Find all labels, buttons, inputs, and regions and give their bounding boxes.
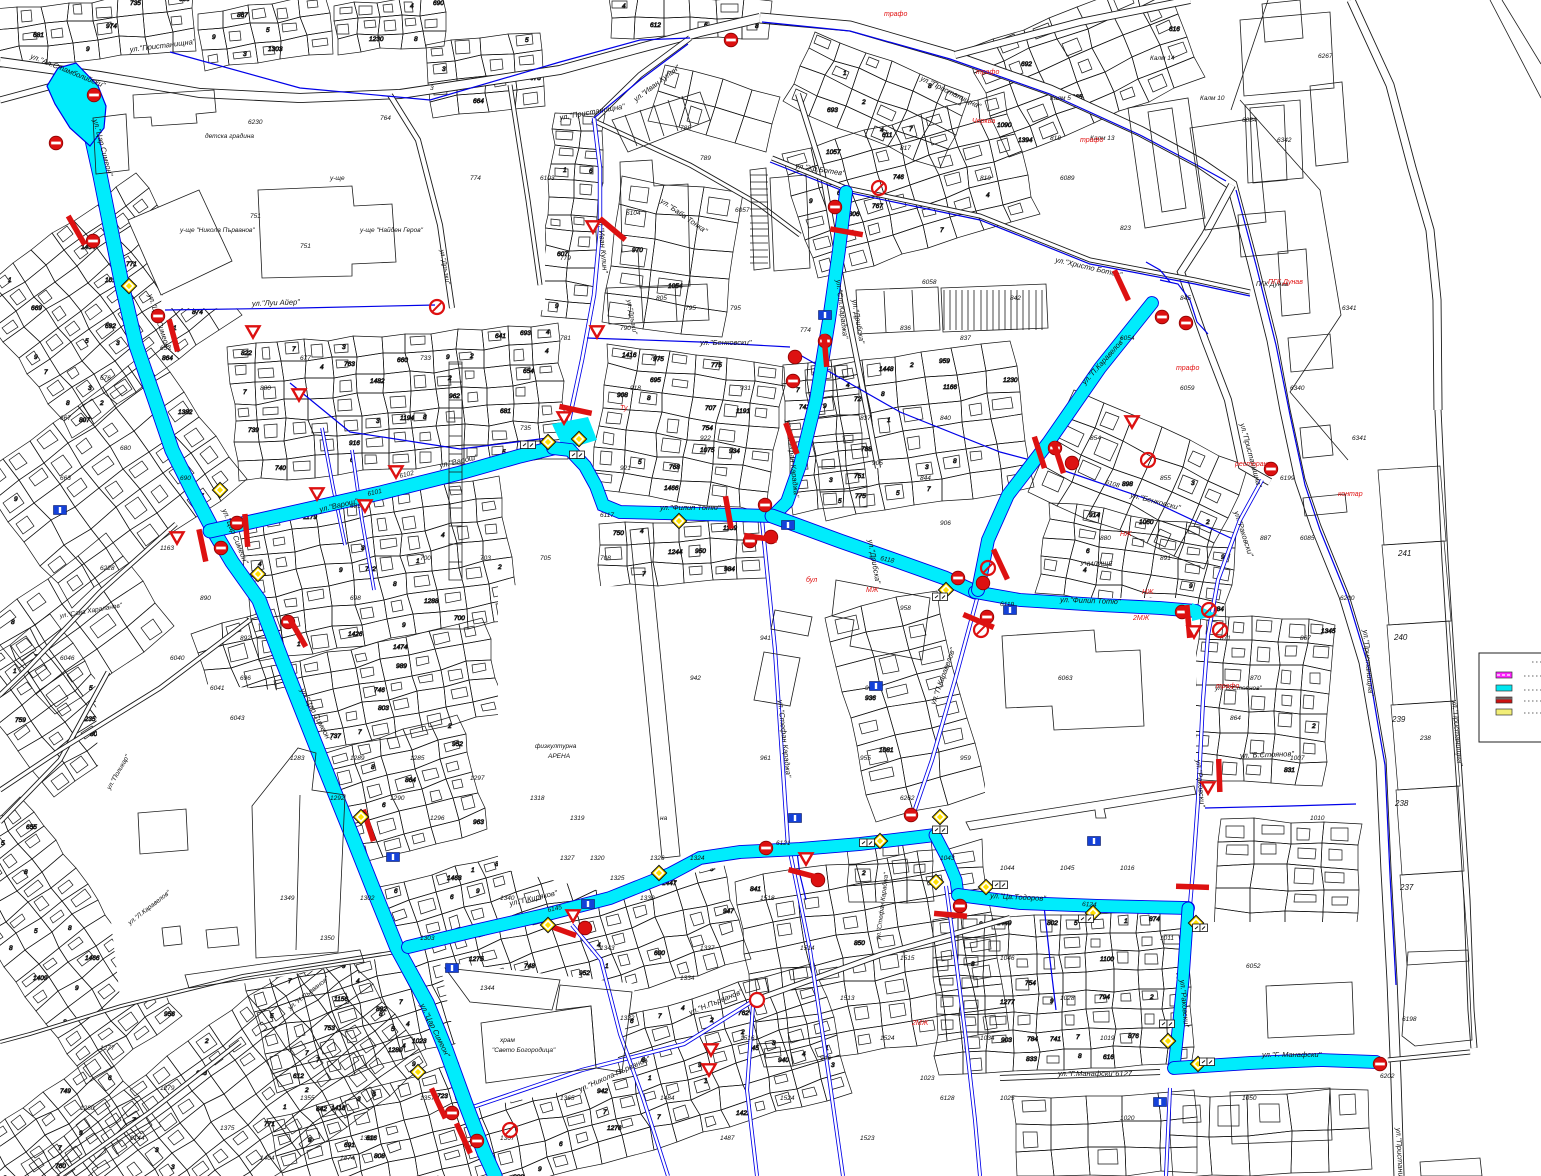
svg-text:1297: 1297: [470, 775, 485, 782]
svg-text:864: 864: [1230, 715, 1241, 722]
svg-text:НЖ: НЖ: [1142, 589, 1154, 596]
svg-text:6052: 6052: [1246, 963, 1261, 970]
svg-text:6: 6: [382, 802, 386, 809]
svg-text:6: 6: [450, 894, 454, 901]
svg-text:803: 803: [378, 705, 389, 712]
svg-text:УЧИЛИЩЕ: УЧИЛИЩЕ: [1079, 561, 1113, 568]
svg-text:4: 4: [410, 3, 414, 10]
svg-text:1515: 1515: [900, 955, 915, 962]
svg-text:3: 3: [829, 477, 833, 484]
svg-text:1524: 1524: [780, 1095, 795, 1102]
svg-text:8: 8: [66, 400, 70, 407]
svg-text:822: 822: [241, 350, 252, 357]
svg-text:7: 7: [399, 999, 403, 1006]
svg-text:808: 808: [374, 1153, 385, 1160]
svg-text:3: 3: [116, 340, 120, 347]
svg-text:790: 790: [620, 325, 631, 332]
svg-text:2: 2: [1205, 519, 1210, 526]
svg-text:1: 1: [887, 417, 891, 424]
svg-text:9: 9: [1189, 583, 1193, 590]
svg-text:952: 952: [579, 970, 590, 977]
svg-text:6144: 6144: [130, 1135, 145, 1142]
svg-text:9: 9: [823, 403, 827, 410]
svg-text:781: 781: [560, 335, 571, 342]
svg-text:1296: 1296: [430, 815, 445, 822]
svg-text:1292: 1292: [330, 795, 345, 802]
svg-text:708: 708: [600, 555, 611, 562]
svg-text:1156: 1156: [334, 996, 348, 1003]
svg-text:9: 9: [212, 34, 216, 41]
svg-text:7: 7: [292, 346, 296, 353]
svg-text:791: 791: [650, 355, 661, 362]
svg-text:763: 763: [344, 361, 355, 368]
svg-text:на: на: [660, 815, 668, 822]
svg-text:1524: 1524: [880, 1035, 895, 1042]
svg-text:760: 760: [55, 1163, 66, 1170]
svg-text:749: 749: [60, 1088, 71, 1095]
svg-text:2: 2: [709, 1017, 714, 1024]
svg-text:7: 7: [940, 227, 944, 234]
svg-text:3: 3: [155, 1147, 159, 1154]
svg-text:ул."Г.Манафски"6127: ул."Г.Манафски"6127: [1057, 1069, 1133, 1078]
svg-text:5: 5: [1074, 920, 1078, 927]
svg-text:936: 936: [865, 695, 876, 702]
svg-text:АРЕНА: АРЕНА: [547, 753, 570, 760]
svg-text:ул."Г. Манафски": ул."Г. Манафски": [1261, 1050, 1322, 1059]
svg-text:1349: 1349: [280, 895, 295, 902]
svg-text:4: 4: [1083, 567, 1087, 574]
svg-text:8: 8: [393, 581, 397, 588]
svg-text:ул."Луи Айер": ул."Луи Айер": [251, 297, 301, 308]
svg-text:НЖ: НЖ: [1120, 531, 1132, 538]
svg-text:1045: 1045: [1060, 865, 1075, 872]
svg-text:1302: 1302: [360, 895, 375, 902]
svg-text:1325: 1325: [610, 875, 625, 882]
svg-text:8: 8: [9, 945, 13, 952]
svg-text:6342: 6342: [1277, 137, 1292, 144]
svg-text:751: 751: [300, 243, 311, 250]
svg-text:914: 914: [1089, 512, 1100, 519]
svg-text:880: 880: [260, 385, 271, 392]
svg-text:844: 844: [920, 475, 931, 482]
svg-text:Ту: Ту: [620, 405, 628, 412]
svg-text:789: 789: [700, 155, 711, 162]
svg-text:1: 1: [8, 277, 12, 284]
svg-text:7: 7: [243, 389, 247, 396]
svg-text:ПГК Дунав: ПГК Дунав: [1268, 279, 1303, 286]
svg-text:1100: 1100: [1100, 956, 1114, 963]
svg-text:876: 876: [1128, 1033, 1139, 1040]
svg-text:795: 795: [685, 305, 696, 312]
svg-text:контар: контар: [1338, 491, 1363, 498]
svg-text:974: 974: [106, 23, 117, 30]
svg-text:6043: 6043: [230, 715, 245, 722]
svg-text:9: 9: [1050, 998, 1054, 1005]
svg-text:693: 693: [520, 330, 531, 337]
svg-text:898: 898: [1122, 481, 1133, 488]
svg-text:1319: 1319: [570, 815, 585, 822]
svg-text:8: 8: [68, 925, 72, 932]
svg-text:3: 3: [342, 344, 346, 351]
svg-text:4: 4: [546, 329, 550, 336]
svg-text:1466: 1466: [664, 485, 679, 492]
svg-text:1334: 1334: [680, 975, 695, 982]
svg-text:8: 8: [372, 1091, 376, 1098]
svg-text:1081: 1081: [879, 747, 894, 754]
svg-text:6063: 6063: [1058, 675, 1073, 682]
svg-text:754: 754: [702, 425, 713, 432]
svg-text:600: 600: [654, 950, 665, 957]
svg-text:741: 741: [1050, 1036, 1061, 1043]
svg-text:1007: 1007: [1290, 755, 1305, 762]
svg-text:9: 9: [446, 354, 450, 361]
svg-text:1404: 1404: [260, 1155, 275, 1162]
svg-text:963: 963: [473, 819, 484, 826]
svg-text:5: 5: [525, 37, 529, 44]
svg-text:906: 906: [940, 520, 951, 527]
svg-text:7: 7: [44, 369, 48, 376]
svg-text:2: 2: [861, 99, 866, 106]
svg-text:691: 691: [344, 1142, 355, 1149]
svg-text:956: 956: [164, 1011, 175, 1018]
svg-text:1332: 1332: [620, 1015, 635, 1022]
svg-text:1166: 1166: [943, 384, 957, 391]
svg-text:750: 750: [613, 530, 624, 537]
svg-text:807: 807: [79, 417, 90, 424]
svg-text:2МЖ: 2МЖ: [911, 1020, 929, 1027]
svg-text:3: 3: [361, 545, 365, 552]
svg-text:6262: 6262: [900, 795, 915, 802]
svg-text:бул: бул: [806, 576, 817, 584]
svg-text:4: 4: [545, 348, 549, 355]
svg-text:1: 1: [704, 1078, 708, 1085]
svg-text:у-ще "Найден Геров": у-ще "Найден Геров": [359, 226, 424, 234]
svg-text:707: 707: [705, 405, 716, 412]
svg-text:1448: 1448: [879, 366, 894, 373]
svg-text:1075: 1075: [700, 447, 715, 454]
svg-text:1279: 1279: [160, 1085, 175, 1092]
svg-text:1: 1: [283, 1104, 287, 1111]
svg-text:4: 4: [802, 1051, 806, 1058]
svg-text:7: 7: [909, 126, 913, 133]
svg-text:Калм 10: Калм 10: [1200, 95, 1225, 102]
svg-text:5: 5: [270, 1013, 274, 1020]
svg-text:845: 845: [1180, 295, 1191, 302]
svg-text:3: 3: [357, 1096, 361, 1103]
svg-text:6121: 6121: [776, 840, 791, 847]
svg-text:239: 239: [1391, 715, 1406, 724]
svg-text:5: 5: [838, 498, 842, 505]
svg-text:1327: 1327: [560, 855, 575, 862]
svg-text:931: 931: [740, 385, 751, 392]
svg-text:775: 775: [855, 493, 866, 500]
svg-text:9: 9: [555, 303, 559, 310]
svg-text:1343: 1343: [600, 945, 615, 952]
svg-text:854: 854: [1090, 435, 1101, 442]
svg-text:у-ще: у-ще: [329, 175, 345, 182]
svg-text:794: 794: [1099, 994, 1110, 1001]
svg-text:6230: 6230: [248, 119, 263, 126]
svg-text:6: 6: [394, 888, 398, 895]
svg-text:3: 3: [772, 1040, 776, 1047]
svg-text:864: 864: [405, 777, 416, 784]
svg-text:7: 7: [642, 571, 646, 578]
svg-text:7: 7: [927, 486, 931, 493]
svg-text:2: 2: [909, 362, 914, 369]
svg-text:1280: 1280: [80, 1105, 95, 1112]
svg-text:823: 823: [1120, 225, 1131, 232]
svg-text:703: 703: [480, 555, 491, 562]
svg-text:680: 680: [120, 445, 131, 452]
svg-text:3: 3: [831, 1062, 835, 1069]
svg-text:667: 667: [60, 415, 71, 422]
svg-text:1285: 1285: [410, 755, 425, 762]
svg-text:693: 693: [827, 107, 838, 114]
svg-text:867: 867: [1300, 635, 1311, 642]
svg-text:918: 918: [630, 385, 641, 392]
svg-text:1025: 1025: [1000, 1095, 1015, 1102]
svg-text:1277: 1277: [100, 1045, 115, 1052]
svg-text:942: 942: [597, 1088, 608, 1095]
svg-text:1: 1: [471, 867, 475, 874]
svg-text:677: 677: [300, 355, 311, 362]
svg-text:735: 735: [130, 0, 141, 7]
svg-text:1514: 1514: [800, 945, 815, 952]
svg-text:1050: 1050: [1242, 1095, 1257, 1102]
svg-text:6341: 6341: [1352, 435, 1367, 442]
svg-text:754: 754: [1025, 980, 1036, 987]
svg-text:3: 3: [376, 418, 380, 425]
svg-text:9: 9: [75, 985, 79, 992]
svg-text:698: 698: [350, 595, 361, 602]
svg-text:837: 837: [960, 335, 971, 342]
svg-text:8: 8: [11, 619, 15, 626]
svg-text:1409: 1409: [33, 975, 48, 982]
svg-text:7: 7: [796, 387, 800, 394]
svg-text:1330: 1330: [640, 895, 655, 902]
svg-text:1474: 1474: [340, 1155, 355, 1162]
svg-text:5: 5: [638, 459, 642, 466]
svg-text:1020: 1020: [1120, 1115, 1135, 1122]
svg-text:1337: 1337: [700, 945, 715, 952]
svg-text:1: 1: [563, 167, 567, 174]
svg-text:735: 735: [520, 425, 531, 432]
svg-text:611: 611: [882, 132, 893, 139]
svg-text:3: 3: [243, 51, 247, 58]
svg-text:962: 962: [449, 393, 460, 400]
svg-text:1023: 1023: [412, 1038, 427, 1045]
svg-text:892: 892: [240, 635, 251, 642]
svg-text:6117: 6117: [600, 512, 614, 519]
svg-text:1277: 1277: [1000, 999, 1015, 1006]
svg-text:1303: 1303: [420, 935, 435, 942]
svg-text:6267: 6267: [1318, 53, 1333, 60]
svg-text:6228: 6228: [100, 565, 115, 572]
svg-text:детска градина: детска градина: [205, 132, 254, 140]
svg-text:8: 8: [414, 36, 418, 43]
svg-text:3: 3: [925, 464, 929, 471]
svg-text:1345: 1345: [1321, 628, 1336, 635]
svg-text:934: 934: [729, 448, 740, 455]
svg-text:1230: 1230: [369, 36, 384, 43]
svg-text:818: 818: [1050, 135, 1061, 142]
svg-text:4: 4: [320, 364, 324, 371]
svg-text:храм: храм: [499, 1037, 515, 1044]
svg-text:1320: 1320: [590, 855, 605, 862]
svg-text:8: 8: [371, 764, 375, 771]
svg-text:676: 676: [100, 375, 111, 382]
svg-text:2: 2: [447, 723, 452, 730]
svg-text:916: 916: [349, 440, 360, 447]
svg-text:837: 837: [860, 415, 871, 422]
svg-text:9: 9: [698, 1062, 702, 1069]
svg-text:764: 764: [380, 115, 391, 122]
svg-text:867: 867: [237, 12, 248, 19]
svg-text:1344: 1344: [480, 985, 495, 992]
svg-text:2: 2: [497, 564, 502, 571]
svg-text:746: 746: [374, 687, 385, 694]
svg-text:1163: 1163: [160, 545, 174, 552]
svg-text:трафо: трафо: [1080, 137, 1103, 144]
svg-text:819: 819: [980, 175, 991, 182]
svg-text:7: 7: [358, 729, 362, 736]
svg-text:4: 4: [622, 3, 626, 10]
svg-text:961: 961: [760, 755, 771, 762]
svg-text:Черква: Черква: [972, 118, 995, 125]
svg-text:663: 663: [60, 475, 71, 482]
svg-text:1375: 1375: [220, 1125, 235, 1132]
svg-text:664: 664: [473, 98, 484, 105]
svg-text:1394: 1394: [1018, 137, 1033, 144]
svg-text:696: 696: [240, 675, 251, 682]
svg-text:805: 805: [656, 295, 667, 302]
svg-text:4: 4: [986, 192, 990, 199]
svg-text:1191: 1191: [736, 408, 750, 415]
svg-text:9: 9: [809, 198, 813, 205]
svg-text:768: 768: [669, 464, 680, 471]
svg-text:240: 240: [1393, 633, 1408, 642]
svg-text:788: 788: [861, 446, 872, 453]
svg-text:8: 8: [1078, 1053, 1082, 1060]
svg-text:2: 2: [447, 375, 452, 382]
svg-text:774: 774: [470, 175, 481, 182]
svg-text:950: 950: [695, 548, 706, 555]
svg-text:616: 616: [1169, 26, 1180, 33]
svg-text:864: 864: [162, 355, 173, 362]
svg-text:1: 1: [13, 668, 17, 675]
svg-text:908: 908: [617, 392, 628, 399]
svg-text:1290: 1290: [390, 795, 405, 802]
svg-text:946: 946: [820, 1055, 831, 1062]
svg-text:700: 700: [420, 555, 431, 562]
svg-text:1194: 1194: [400, 415, 414, 422]
svg-text:1: 1: [843, 70, 847, 77]
svg-text:8: 8: [881, 391, 885, 398]
svg-text:6104: 6104: [626, 210, 641, 217]
svg-text:9: 9: [86, 46, 90, 53]
svg-text:681: 681: [33, 32, 44, 39]
svg-text:1230: 1230: [1003, 377, 1018, 384]
svg-text:1028: 1028: [1060, 995, 1075, 1002]
svg-text:751: 751: [854, 473, 865, 480]
svg-text:237: 237: [1399, 883, 1414, 892]
svg-text:МЖ: МЖ: [866, 587, 879, 594]
svg-text:984: 984: [724, 566, 735, 573]
svg-text:трафо: трафо: [1176, 365, 1199, 372]
svg-text:5: 5: [34, 928, 38, 935]
svg-text:774: 774: [800, 327, 811, 334]
svg-text:6: 6: [559, 1141, 563, 1148]
svg-text:1010: 1010: [1310, 815, 1325, 822]
svg-text:6128: 6128: [940, 1095, 955, 1102]
svg-text:6198: 6198: [1402, 1016, 1417, 1023]
svg-text:6040: 6040: [170, 655, 185, 662]
svg-text:1: 1: [648, 1075, 652, 1082]
svg-text:1289: 1289: [350, 755, 365, 762]
svg-text:692: 692: [105, 323, 116, 330]
svg-text:6041: 6041: [210, 685, 225, 692]
svg-text:6200: 6200: [1340, 595, 1355, 602]
svg-text:5: 5: [266, 27, 270, 34]
svg-text:6084: 6084: [1242, 117, 1257, 124]
svg-text:669: 669: [179, 0, 190, 3]
svg-text:физкултурна: физкултурна: [535, 743, 577, 750]
svg-text:989: 989: [396, 663, 407, 670]
svg-text:1523: 1523: [860, 1135, 875, 1142]
svg-text:9: 9: [476, 888, 480, 895]
svg-text:1011: 1011: [1160, 935, 1174, 942]
svg-text:9: 9: [402, 622, 406, 629]
svg-text:654: 654: [523, 368, 534, 375]
svg-text:840: 840: [940, 415, 951, 422]
svg-text:5: 5: [896, 490, 900, 497]
svg-text:7: 7: [288, 978, 292, 985]
svg-text:958: 958: [900, 605, 911, 612]
svg-text:892: 892: [376, 1006, 387, 1013]
svg-text:2: 2: [861, 870, 866, 877]
svg-text:1484: 1484: [660, 1095, 675, 1102]
svg-text:7: 7: [1076, 1034, 1080, 1041]
svg-text:887: 887: [1260, 535, 1271, 542]
svg-text:2: 2: [469, 353, 474, 360]
svg-text:"Свето Богородица": "Свето Богородица": [492, 1046, 556, 1054]
svg-text:705: 705: [540, 555, 551, 562]
svg-text:767: 767: [872, 203, 883, 210]
svg-text:748: 748: [524, 963, 535, 970]
svg-text:238: 238: [1419, 735, 1431, 742]
svg-text:1043: 1043: [940, 855, 955, 862]
svg-text:733: 733: [420, 355, 431, 362]
svg-text:6: 6: [1086, 548, 1090, 555]
svg-text:855: 855: [1160, 475, 1171, 482]
svg-text:8: 8: [953, 458, 957, 465]
svg-text:1324: 1324: [690, 855, 705, 862]
svg-text:8: 8: [971, 961, 975, 968]
svg-text:842: 842: [1010, 295, 1021, 302]
svg-text:941: 941: [760, 635, 771, 642]
svg-text:6202: 6202: [1380, 1073, 1395, 1080]
svg-text:трафо: трафо: [1216, 683, 1239, 690]
svg-text:9: 9: [14, 496, 18, 503]
svg-text:831: 831: [1284, 767, 1295, 774]
svg-text:6340: 6340: [1290, 385, 1305, 392]
svg-text:746: 746: [893, 174, 904, 181]
svg-text:Калм 14: Калм 14: [1150, 55, 1175, 62]
svg-text:241: 241: [1397, 549, 1411, 558]
svg-text:1355: 1355: [300, 1095, 315, 1102]
svg-text:трафо: трафо: [884, 11, 907, 18]
svg-text:890: 890: [200, 595, 211, 602]
